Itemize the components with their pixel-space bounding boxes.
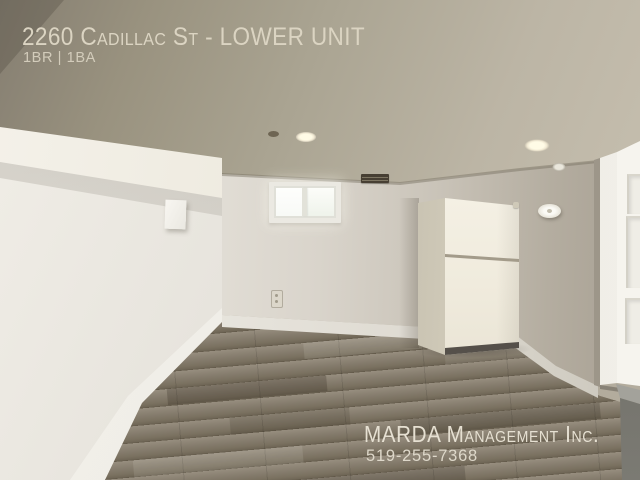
basement-window bbox=[269, 182, 341, 223]
recessed-light bbox=[520, 137, 554, 154]
window-pane bbox=[276, 188, 303, 216]
listing-photo: 2260 Cadillac St - LOWER UNIT 1BR | 1BA … bbox=[0, 0, 640, 480]
window-mullion bbox=[302, 188, 307, 216]
window-frame bbox=[274, 186, 336, 218]
wall-access-panel bbox=[165, 200, 187, 230]
vent-slats bbox=[362, 175, 388, 182]
listing-beds-baths: 1BR | 1BA bbox=[23, 50, 96, 66]
door-panel bbox=[626, 216, 640, 288]
round-wall-fixture bbox=[538, 204, 561, 218]
refrigerator bbox=[407, 195, 522, 357]
recessed-light bbox=[292, 130, 320, 144]
company-phone: 519-255-7368 bbox=[366, 447, 478, 465]
company-name: MARDA Management Inc. bbox=[364, 422, 599, 447]
door-panel bbox=[625, 298, 640, 344]
window-glass bbox=[276, 188, 334, 216]
refrigerator-hinge bbox=[513, 202, 519, 208]
small-ceiling-fixture bbox=[551, 162, 567, 172]
electrical-outlet bbox=[271, 290, 283, 308]
ceiling-detector bbox=[268, 131, 279, 137]
door-panel bbox=[627, 174, 640, 214]
listing-title: 2260 Cadillac St - LOWER UNIT bbox=[22, 24, 365, 51]
hvac-vent bbox=[361, 174, 389, 183]
